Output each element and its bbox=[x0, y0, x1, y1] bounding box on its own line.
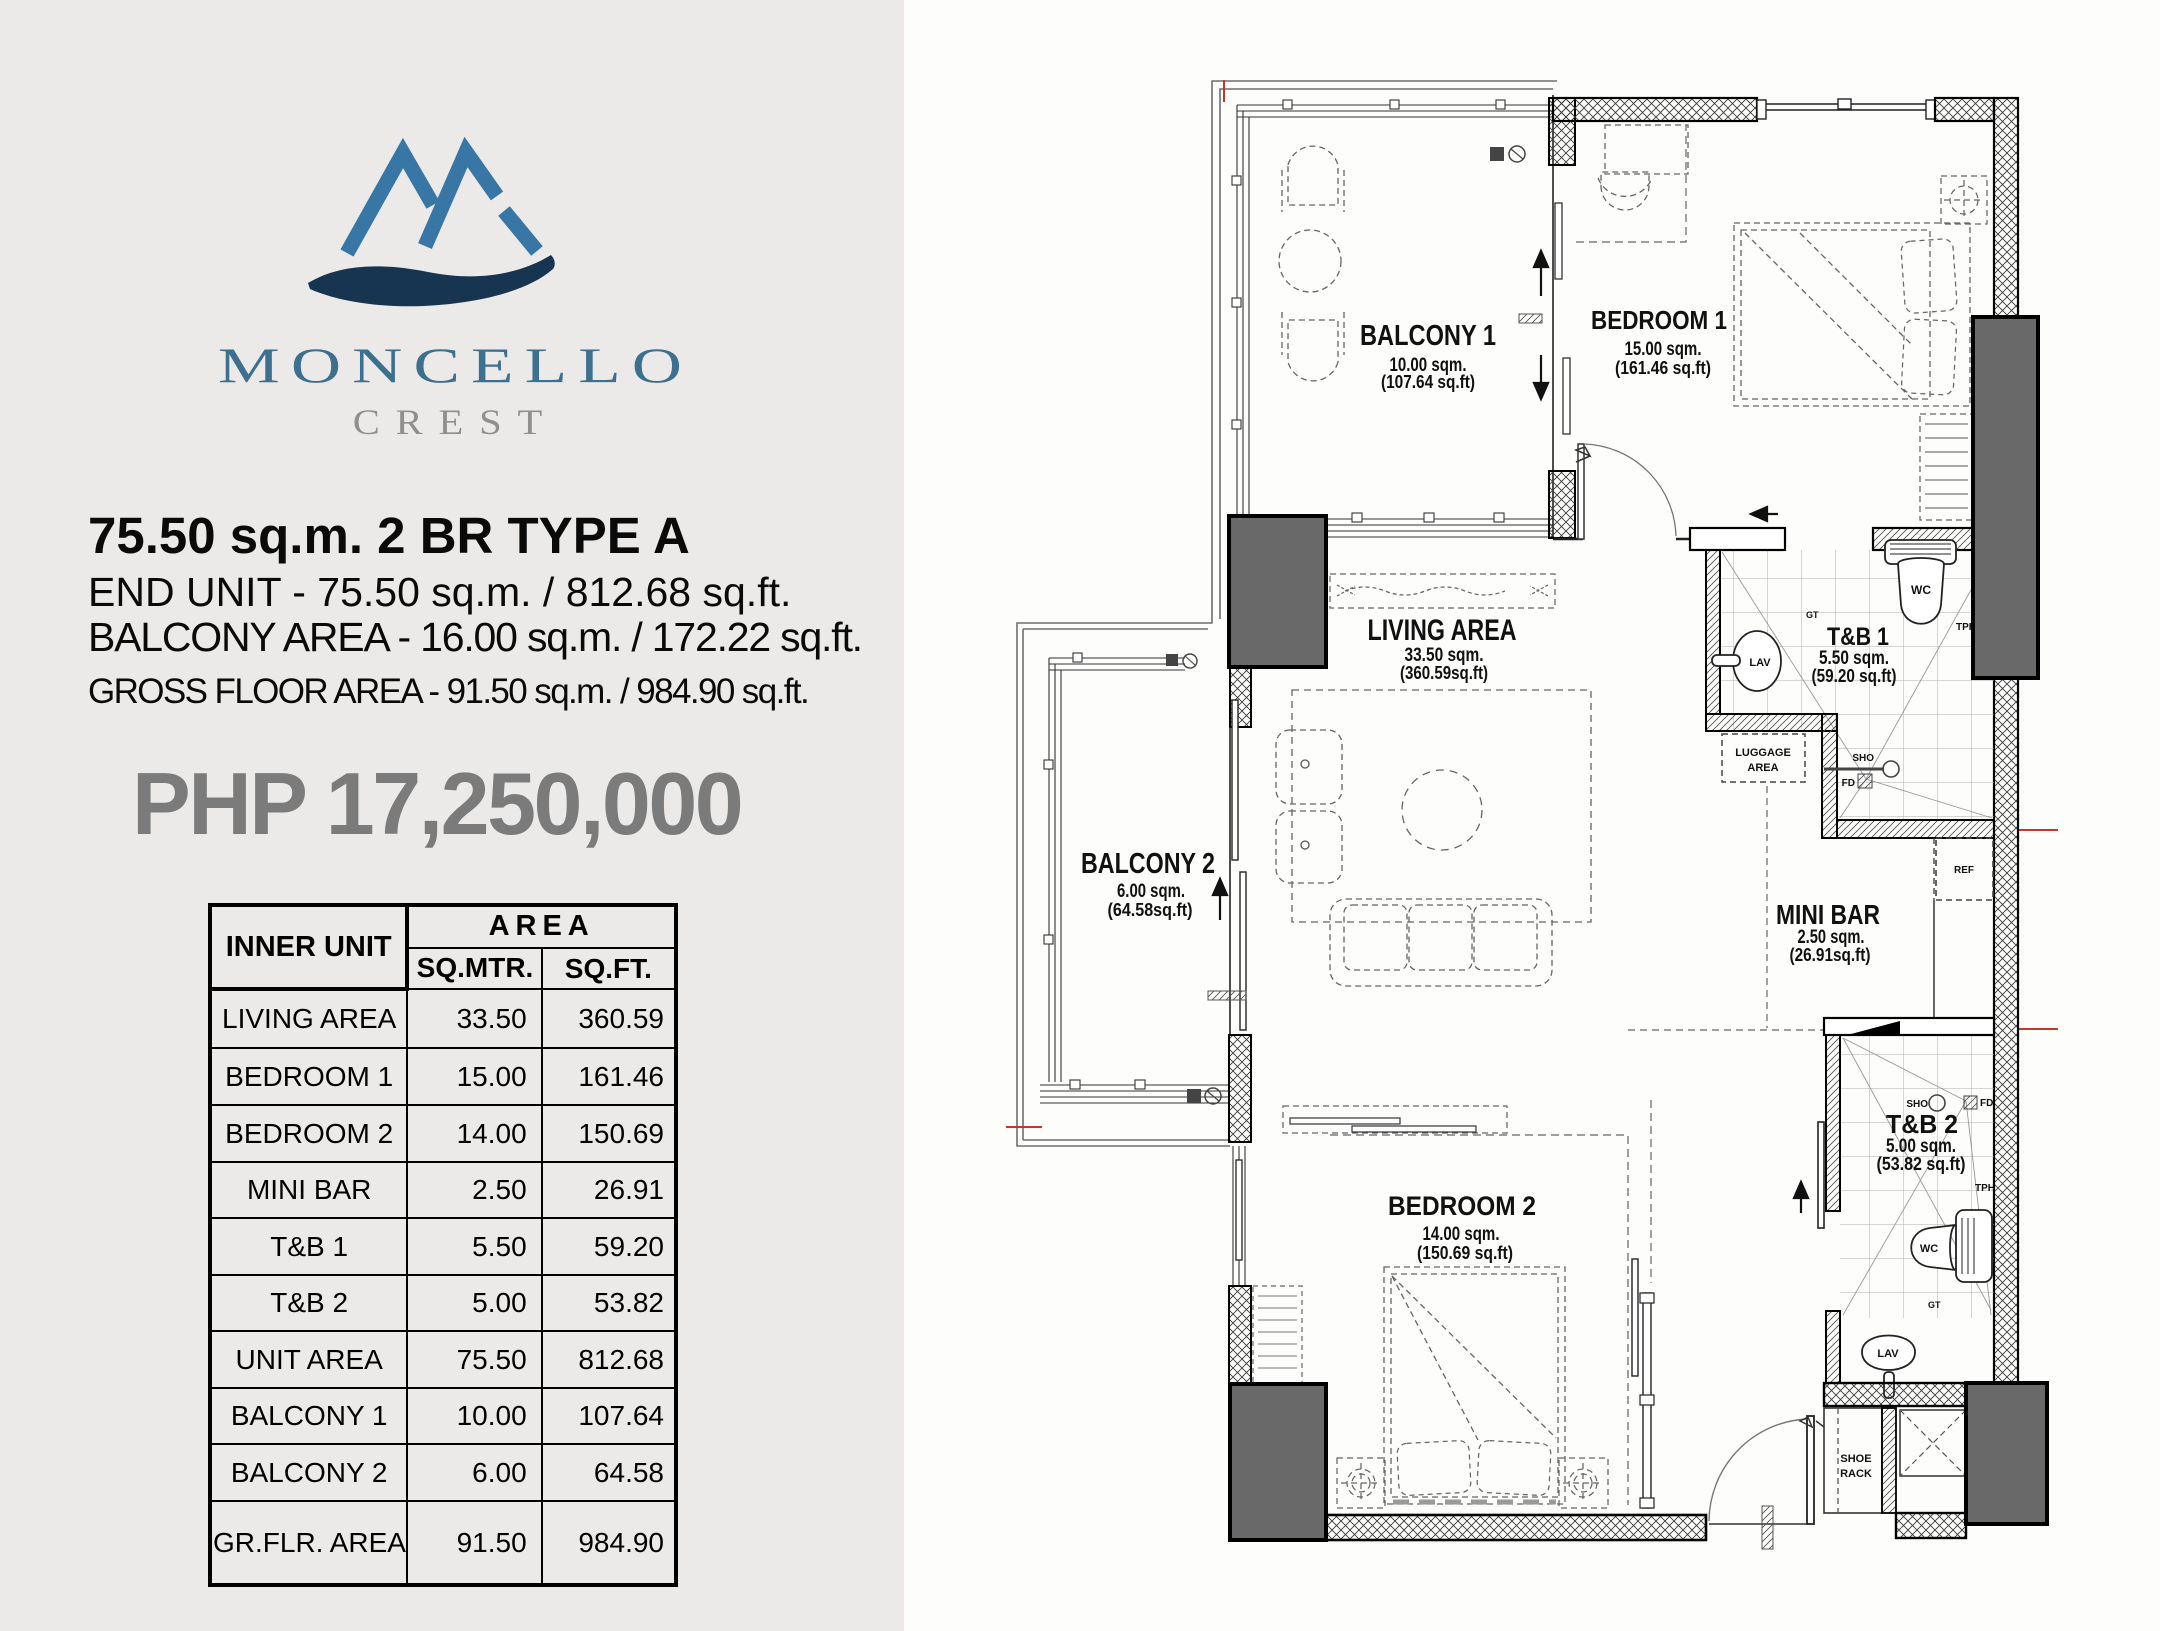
svg-text:(64.58sq.ft): (64.58sq.ft) bbox=[1108, 900, 1193, 920]
svg-text:(150.69 sq.ft): (150.69 sq.ft) bbox=[1417, 1243, 1513, 1263]
svg-text:LAV: LAV bbox=[1877, 1348, 1899, 1360]
svg-text:6.00 sqm.: 6.00 sqm. bbox=[1117, 881, 1185, 902]
svg-text:14.00 sqm.: 14.00 sqm. bbox=[1423, 1224, 1500, 1245]
svg-text:T&B 1: T&B 1 bbox=[1827, 623, 1889, 651]
svg-text:CREST: CREST bbox=[353, 403, 558, 442]
svg-text:MINI BAR: MINI BAR bbox=[1776, 899, 1880, 930]
svg-text:LAV: LAV bbox=[1749, 657, 1771, 669]
svg-text:T&B 2: T&B 2 bbox=[1886, 1109, 1958, 1139]
svg-text:GT: GT bbox=[1806, 610, 1819, 620]
svg-text:(53.82 sq.ft): (53.82 sq.ft) bbox=[1877, 1154, 1966, 1174]
svg-text:AREA: AREA bbox=[1747, 762, 1778, 774]
svg-text:GT: GT bbox=[1928, 1300, 1941, 1310]
svg-text:BEDROOM 1: BEDROOM 1 bbox=[1591, 305, 1727, 335]
svg-text:(360.59sq.ft): (360.59sq.ft) bbox=[1400, 663, 1488, 683]
svg-text:LUGGAGE: LUGGAGE bbox=[1735, 747, 1791, 759]
svg-text:SHO: SHO bbox=[1852, 753, 1874, 764]
svg-text:(107.64 sq.ft): (107.64 sq.ft) bbox=[1381, 372, 1475, 392]
svg-text:LIVING AREA: LIVING AREA bbox=[1368, 614, 1517, 647]
svg-text:RACK: RACK bbox=[1840, 1468, 1872, 1480]
svg-text:BALCONY 2: BALCONY 2 bbox=[1081, 848, 1215, 880]
svg-text:MONCELLO: MONCELLO bbox=[218, 338, 693, 393]
svg-text:FD: FD bbox=[1842, 778, 1855, 789]
svg-text:SHO: SHO bbox=[1906, 1099, 1928, 1110]
svg-text:FD: FD bbox=[1980, 1098, 1993, 1109]
svg-text:BEDROOM 2: BEDROOM 2 bbox=[1388, 1191, 1536, 1221]
svg-text:(26.91sq.ft): (26.91sq.ft) bbox=[1790, 945, 1871, 965]
svg-text:WC: WC bbox=[1920, 1243, 1938, 1255]
svg-text:(59.20 sq.ft): (59.20 sq.ft) bbox=[1812, 666, 1897, 686]
svg-text:REF: REF bbox=[1954, 865, 1974, 876]
svg-text:SHOE: SHOE bbox=[1840, 1453, 1871, 1465]
svg-text:(161.46 sq.ft): (161.46 sq.ft) bbox=[1615, 358, 1711, 378]
svg-text:15.00 sqm.: 15.00 sqm. bbox=[1625, 339, 1702, 360]
svg-text:WC: WC bbox=[1911, 583, 1931, 597]
svg-text:TPH: TPH bbox=[1975, 1183, 1995, 1194]
svg-text:BALCONY 1: BALCONY 1 bbox=[1360, 320, 1496, 352]
